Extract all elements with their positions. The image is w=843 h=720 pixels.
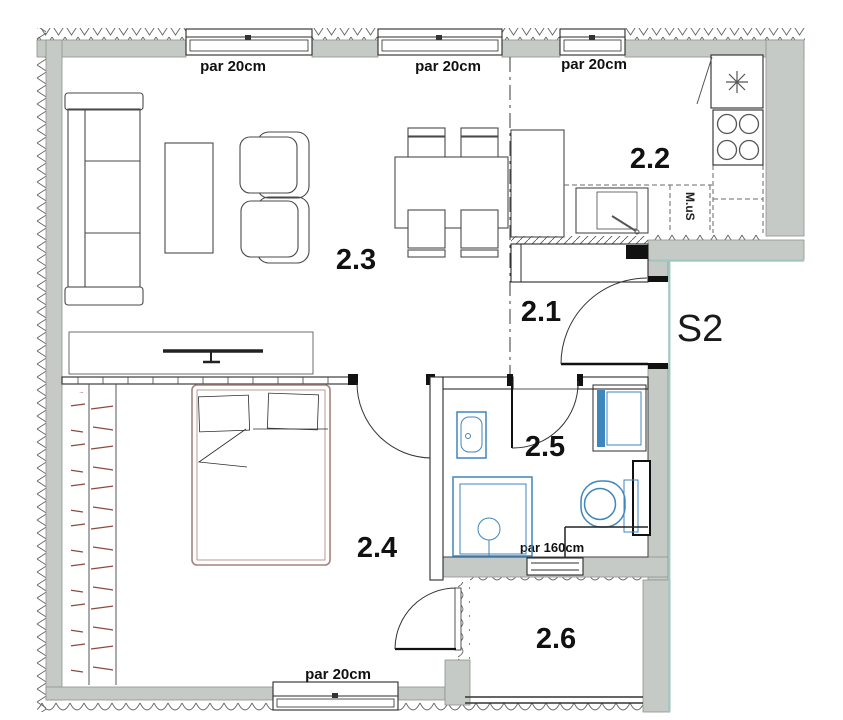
- snowflake-icon: [726, 71, 748, 93]
- floor-plan-page: par 20cm par 20cm par 20cm par 20cm: [0, 0, 843, 720]
- hatch-top-1: [37, 28, 186, 40]
- wardrobe-top-hatch: [511, 236, 648, 244]
- room-label-kitchen: 2.2: [630, 143, 670, 175]
- window-top-right: par 20cm: [560, 29, 627, 73]
- window-bathroom-label: par 160cm: [520, 540, 584, 555]
- bathroom-west-wall: [430, 377, 443, 580]
- window-top-left-label: par 20cm: [200, 58, 266, 75]
- room-label-hall: 2.1: [521, 296, 561, 328]
- room-label-living: 2.3: [336, 244, 376, 276]
- window-bathroom: par 160cm: [520, 540, 584, 575]
- wall-right-shaft: [766, 40, 804, 236]
- bathroom-north-wall-left: [443, 377, 513, 389]
- accent-line-horizontal: [650, 260, 804, 262]
- wall-left: [46, 40, 62, 700]
- window-top-right-label: par 20cm: [561, 56, 627, 73]
- hatch-balcony-top: [470, 577, 643, 585]
- hatch-top-3: [502, 28, 560, 40]
- door-jamb: [455, 588, 461, 650]
- wall-top-2: [312, 40, 378, 57]
- window-bottom-label: par 20cm: [305, 666, 371, 683]
- stove: [713, 110, 763, 165]
- hatch-left: [36, 28, 46, 712]
- room-label-bathroom: 2.5: [525, 431, 565, 463]
- room-label-bedroom: 2.4: [357, 532, 397, 564]
- wardrobe: [71, 384, 116, 685]
- unit-label: S2: [677, 308, 723, 350]
- wall-balcony-left-pier: [445, 660, 470, 705]
- wall-kitchen-south: [648, 240, 804, 260]
- wall-top-3: [502, 40, 560, 57]
- chair-seat: [461, 210, 498, 248]
- window-top-middle-label: par 20cm: [415, 58, 481, 75]
- fridge: [711, 55, 763, 108]
- floor-plan-drawing: par 20cm par 20cm par 20cm par 20cm: [0, 0, 843, 720]
- hatch-top-4: [625, 28, 805, 40]
- kitchen-sink-unit-label: M.uS: [683, 192, 697, 221]
- bathroom-north-wall-right: [578, 377, 648, 389]
- room-label-balcony: 2.6: [536, 623, 576, 655]
- accent-line-vertical: [668, 260, 670, 712]
- duct-niche: [633, 461, 650, 535]
- hanger-marks: [71, 392, 113, 680]
- wall-balcony-right: [643, 580, 670, 712]
- hall-wardrobe: [511, 244, 648, 282]
- chair-seat: [408, 210, 445, 248]
- hatch-top-2: [312, 28, 378, 40]
